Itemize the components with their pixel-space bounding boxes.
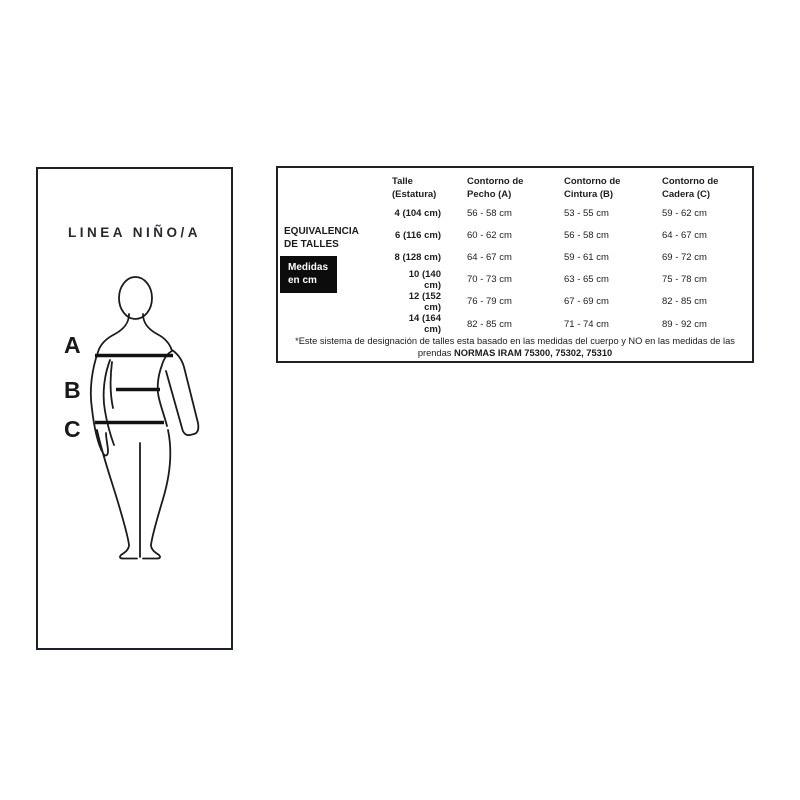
cell-cintura: 53 - 55 cm [564,208,662,219]
table-row: 4 (104 cm) 56 - 58 cm 53 - 55 cm 59 - 62… [392,202,757,224]
size-table: Talle (Estatura) Contorno de Pecho (A) C… [392,176,757,335]
cell-cadera: 69 - 72 cm [662,252,757,263]
body-measurement-diagram: A B C [38,169,231,648]
cell-pecho: 76 - 79 cm [467,296,564,307]
cell-talle: 8 (128 cm) [392,252,441,263]
cell-cintura: 67 - 69 cm [564,296,662,307]
cell-talle: 4 (104 cm) [392,208,441,219]
column-header-pecho: Contorno de Pecho (A) [467,176,564,202]
right-arm-outline [166,350,198,435]
table-row: 14 (164 cm) 82 - 85 cm 71 - 74 cm 89 - 9… [392,313,757,335]
cell-pecho: 64 - 67 cm [467,252,564,263]
column-header-cadera: Contorno de Cadera (C) [662,176,757,202]
cell-cintura: 56 - 58 cm [564,230,662,241]
cell-cadera: 89 - 92 cm [662,319,757,330]
figure-panel: LINEA NIÑO/A A B C [36,167,233,650]
table-row: 12 (152 cm) 76 - 79 cm 67 - 69 cm 82 - 8… [392,291,757,313]
measurement-label-b: B [64,377,81,403]
cell-cadera: 75 - 78 cm [662,274,757,285]
cell-cintura: 63 - 65 cm [564,274,662,285]
cell-talle: 12 (152 cm) [392,291,441,313]
cell-talle: 10 (140 cm) [392,269,441,291]
head-outline [119,277,152,319]
size-chart-panel: EQUIVALENCIA DE TALLES Medidas en cm Tal… [276,166,754,363]
medidas-badge: Medidas en cm [280,256,337,293]
cell-cintura: 71 - 74 cm [564,319,662,330]
measurement-label-c: C [64,416,81,442]
table-row: 6 (116 cm) 60 - 62 cm 56 - 58 cm 64 - 67… [392,224,757,246]
table-header-row: Talle (Estatura) Contorno de Pecho (A) C… [392,176,757,202]
size-chart-side-label: EQUIVALENCIA DE TALLES [284,225,359,251]
cell-cadera: 82 - 85 cm [662,296,757,307]
body-outline [91,314,172,559]
size-guide-page: { "left_panel": { "title": "LINEA NIÑO/A… [0,0,800,800]
cell-talle: 6 (116 cm) [392,230,441,241]
cell-pecho: 60 - 62 cm [467,230,564,241]
left-arm-inner-line [104,360,114,445]
cell-cintura: 59 - 61 cm [564,252,662,263]
column-header-cintura: Contorno de Cintura (B) [564,176,662,202]
cell-talle: 14 (164 cm) [392,313,441,335]
cell-pecho: 70 - 73 cm [467,274,564,285]
footnote: *Este sistema de designación de talles e… [283,335,747,360]
cell-pecho: 56 - 58 cm [467,208,564,219]
cell-pecho: 82 - 85 cm [467,319,564,330]
footnote-norms: NORMAS IRAM 75300, 75302, 75310 [454,348,612,358]
table-row: 10 (140 cm) 70 - 73 cm 63 - 65 cm 75 - 7… [392,269,757,291]
column-header-talle: Talle (Estatura) [392,176,441,202]
table-row: 8 (128 cm) 64 - 67 cm 59 - 61 cm 69 - 72… [392,246,757,268]
measurement-label-a: A [64,332,81,358]
cell-cadera: 59 - 62 cm [662,208,757,219]
cell-cadera: 64 - 67 cm [662,230,757,241]
